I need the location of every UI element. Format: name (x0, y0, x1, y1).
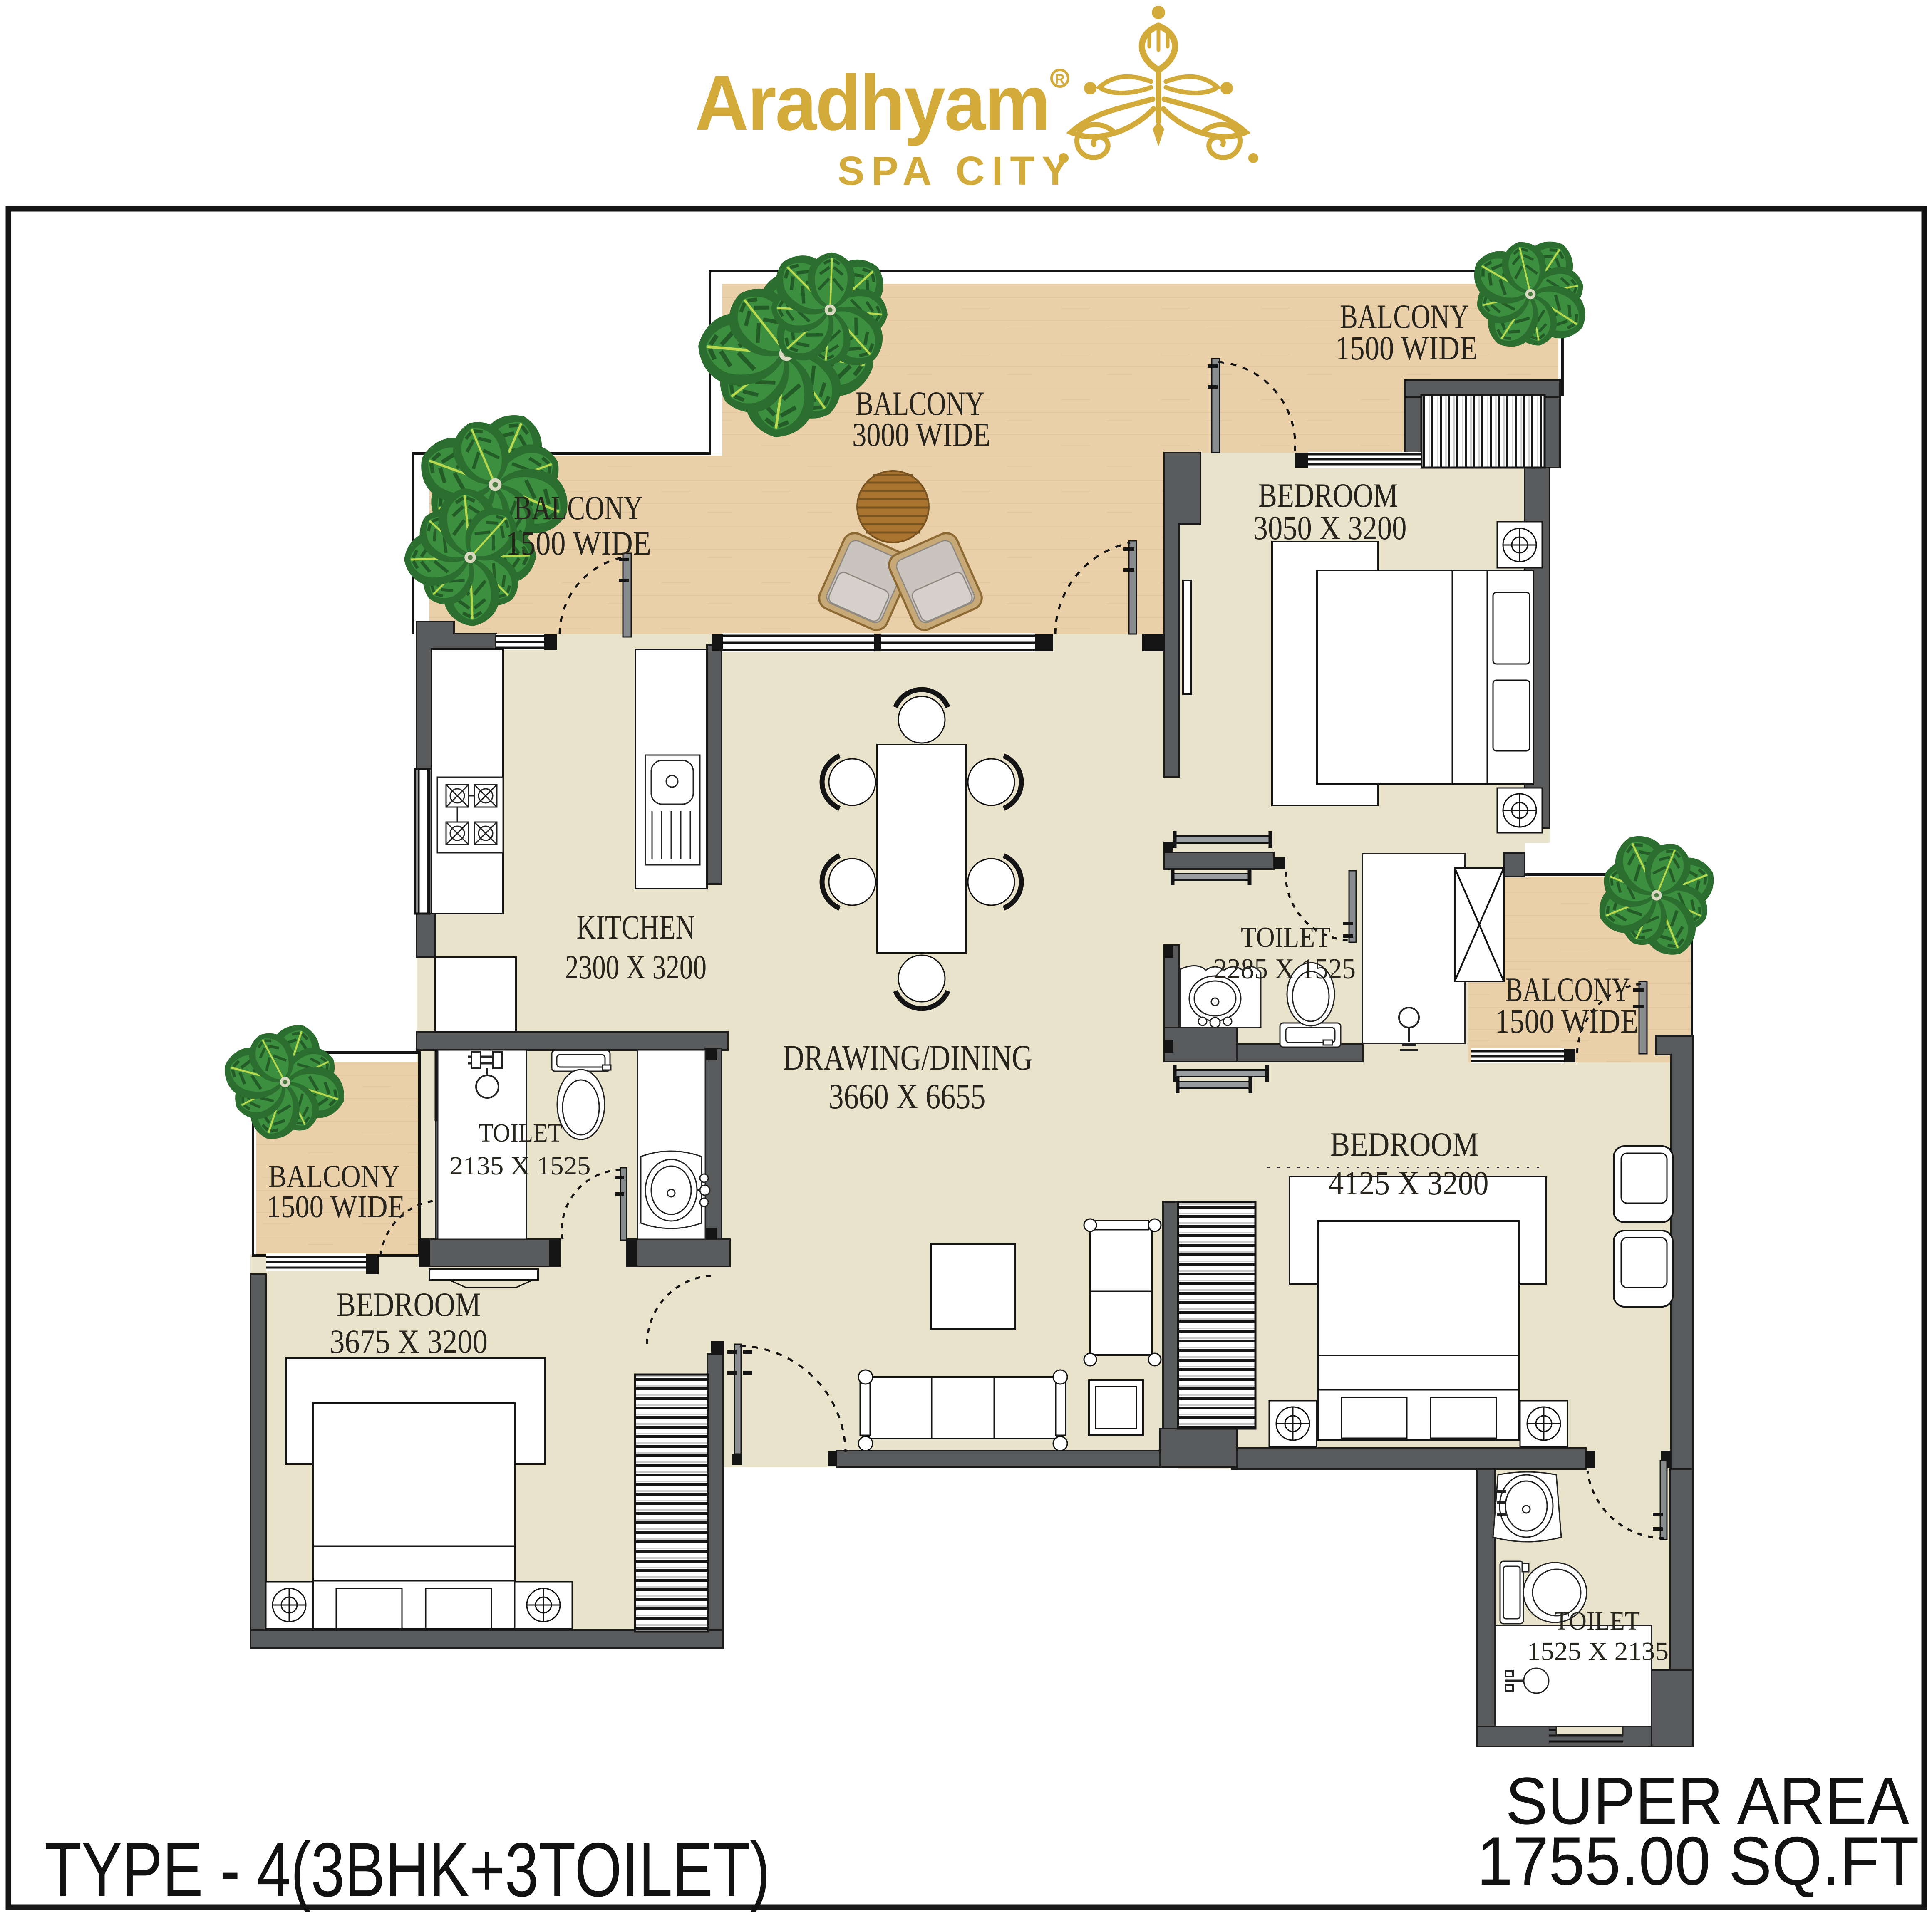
svg-text:BALCONY: BALCONY (514, 489, 643, 527)
svg-text:2135 X 1525: 2135 X 1525 (450, 1152, 591, 1180)
svg-text:SPA CITY: SPA CITY (838, 148, 1076, 193)
svg-text:BEDROOM: BEDROOM (1330, 1125, 1479, 1163)
svg-text:3660 X 6655: 3660 X 6655 (829, 1076, 986, 1116)
svg-text:TOILET: TOILET (1554, 1607, 1640, 1635)
svg-text:1525 X 2135: 1525 X 2135 (1527, 1637, 1669, 1666)
svg-text:1500 WIDE: 1500 WIDE (267, 1189, 405, 1224)
svg-text:3050 X 3200: 3050 X 3200 (1253, 509, 1407, 547)
svg-text:TOILET: TOILET (1241, 921, 1331, 954)
svg-text:DRAWING/DINING: DRAWING/DINING (783, 1038, 1033, 1077)
svg-text:TOILET: TOILET (479, 1119, 563, 1147)
svg-text:3000 WIDE: 3000 WIDE (852, 416, 990, 453)
svg-text:TYPE - 4(3BHK+3TOILET): TYPE - 4(3BHK+3TOILET) (45, 1827, 770, 1912)
svg-text:1755.00 SQ.FT: 1755.00 SQ.FT (1477, 1823, 1919, 1899)
svg-text:BEDROOM: BEDROOM (337, 1285, 481, 1323)
svg-text:1500 WIDE: 1500 WIDE (506, 524, 651, 562)
svg-text:3675 X 3200: 3675 X 3200 (330, 1323, 488, 1360)
svg-text:2285 X 1525: 2285 X 1525 (1213, 953, 1356, 985)
svg-text:4125 X 3200: 4125 X 3200 (1329, 1164, 1489, 1202)
svg-text:1500 WIDE: 1500 WIDE (1335, 329, 1478, 367)
svg-text:1500 WIDE: 1500 WIDE (1495, 1002, 1639, 1040)
svg-text:2300 X 3200: 2300 X 3200 (565, 948, 707, 986)
svg-text:KITCHEN: KITCHEN (577, 908, 695, 946)
svg-text:Aradhyam: Aradhyam (695, 59, 1049, 146)
svg-text:R: R (1055, 72, 1064, 87)
svg-text:BALCONY: BALCONY (268, 1159, 400, 1194)
